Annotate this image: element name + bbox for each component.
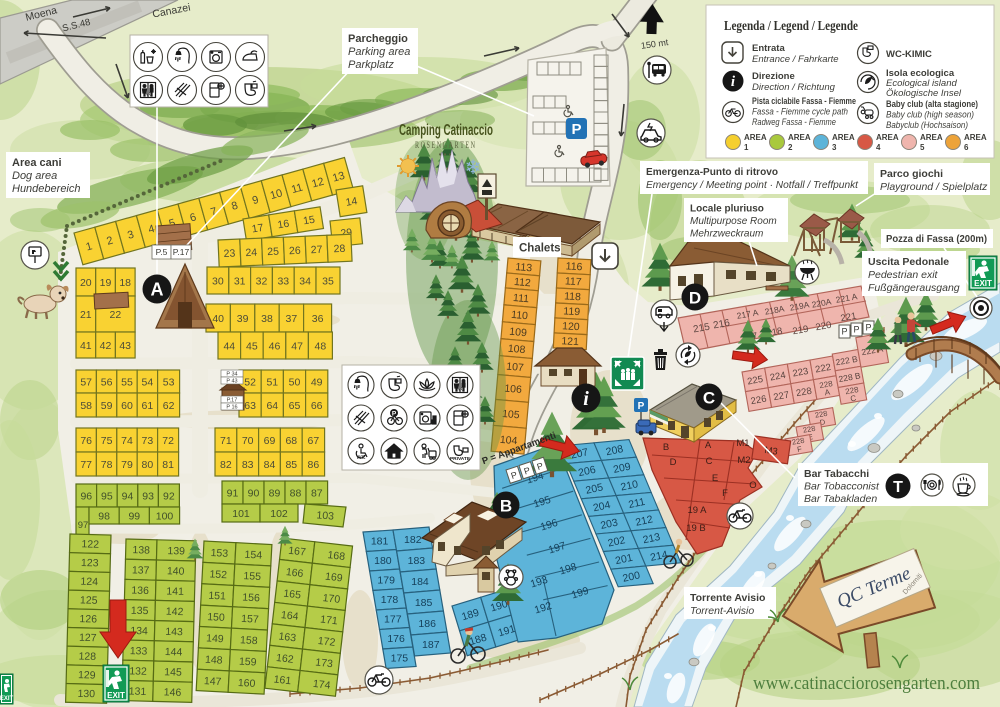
svg-text:Entrance / Fahrkarte: Entrance / Fahrkarte: [752, 54, 839, 65]
svg-text:113: 113: [515, 261, 533, 274]
svg-text:99: 99: [128, 510, 140, 522]
svg-text:101: 101: [232, 508, 250, 520]
svg-text:39: 39: [237, 313, 249, 325]
svg-text:19 B: 19 B: [686, 523, 706, 534]
svg-text:EXIT: EXIT: [974, 279, 992, 288]
svg-text:R O S E N G A R T E N: R O S E N G A R T E N: [415, 140, 475, 150]
svg-text:49: 49: [311, 376, 323, 388]
svg-text:48: 48: [315, 340, 327, 352]
svg-text:135: 135: [131, 605, 149, 617]
svg-text:23: 23: [223, 248, 235, 261]
svg-text:44: 44: [223, 340, 235, 352]
svg-text:164: 164: [280, 609, 299, 623]
svg-text:Pedestrian exit: Pedestrian exit: [868, 269, 939, 281]
svg-text:EXIT: EXIT: [107, 691, 125, 700]
svg-text:F: F: [722, 488, 728, 499]
svg-text:176: 176: [387, 633, 405, 645]
svg-text:B: B: [500, 497, 512, 516]
svg-text:154: 154: [244, 549, 262, 562]
svg-text:1: 1: [744, 143, 749, 152]
svg-text:43: 43: [119, 340, 131, 352]
svg-text:P 43: P 43: [226, 379, 237, 385]
svg-text:Area cani: Area cani: [12, 157, 62, 169]
svg-text:71: 71: [220, 435, 232, 447]
svg-text:P.5: P.5: [156, 247, 168, 257]
svg-text:18: 18: [119, 277, 131, 289]
svg-text:T: T: [893, 479, 903, 496]
svg-text:90: 90: [248, 487, 260, 499]
svg-text:21: 21: [80, 309, 92, 321]
svg-text:5: 5: [920, 143, 925, 152]
svg-text:26: 26: [289, 245, 301, 258]
svg-text:Fassa - Fiemme cycle path: Fassa - Fiemme cycle path: [752, 107, 848, 118]
svg-text:27: 27: [311, 244, 323, 257]
svg-text:163: 163: [278, 630, 297, 644]
svg-text:2: 2: [788, 143, 793, 152]
svg-text:Pista ciclabile Fassa - Fiemme: Pista ciclabile Fassa - Fiemme: [752, 96, 856, 107]
svg-text:Dog area: Dog area: [12, 170, 57, 182]
svg-text:16: 16: [277, 218, 291, 232]
svg-text:161: 161: [273, 673, 292, 687]
svg-text:36: 36: [312, 313, 324, 325]
svg-text:94: 94: [122, 490, 134, 502]
svg-text:131: 131: [129, 686, 147, 698]
svg-text:Torrente Avisio: Torrente Avisio: [690, 592, 765, 604]
svg-text:152: 152: [209, 568, 227, 581]
svg-text:81: 81: [162, 459, 174, 471]
svg-text:102: 102: [270, 508, 288, 520]
svg-text:Parco giochi: Parco giochi: [880, 168, 943, 180]
svg-text:P 34: P 34: [226, 372, 237, 378]
svg-text:Direzione: Direzione: [752, 71, 795, 82]
svg-text:97: 97: [78, 520, 89, 531]
svg-text:50: 50: [289, 376, 301, 388]
svg-text:E: E: [712, 473, 718, 484]
svg-text:169: 169: [324, 571, 343, 585]
svg-text:A: A: [705, 440, 712, 451]
svg-text:67: 67: [308, 435, 320, 447]
svg-text:173: 173: [315, 656, 334, 670]
svg-text:WC-KIMIC: WC-KIMIC: [886, 49, 932, 60]
svg-text:O: O: [749, 480, 756, 491]
svg-text:41: 41: [80, 340, 92, 352]
svg-text:33: 33: [277, 275, 289, 287]
svg-text:22: 22: [110, 309, 122, 321]
svg-text:116: 116: [565, 260, 583, 273]
svg-text:96: 96: [80, 490, 92, 502]
svg-text:Playground / Spielplatz: Playground / Spielplatz: [880, 181, 988, 193]
svg-text:Hundebereich: Hundebereich: [12, 183, 81, 195]
svg-text:Locale pluriuso: Locale pluriuso: [690, 204, 764, 215]
svg-text:Baby club (high season): Baby club (high season): [886, 110, 974, 121]
svg-text:117: 117: [565, 275, 583, 288]
svg-text:171: 171: [320, 613, 339, 627]
svg-text:82: 82: [220, 459, 232, 471]
svg-text:64: 64: [266, 400, 278, 412]
svg-text:51: 51: [266, 376, 278, 388]
svg-text:Radweg Fassa - Fiemme: Radweg Fassa - Fiemme: [752, 117, 836, 128]
svg-text:P: P: [853, 325, 859, 335]
svg-text:72: 72: [162, 435, 174, 447]
svg-text:65: 65: [289, 400, 301, 412]
svg-text:149: 149: [206, 632, 224, 645]
svg-text:156: 156: [242, 591, 260, 604]
svg-text:93: 93: [142, 490, 154, 502]
svg-text:143: 143: [165, 626, 183, 638]
svg-text:118: 118: [564, 290, 582, 303]
svg-text:129: 129: [78, 669, 96, 681]
svg-text:69: 69: [264, 435, 276, 447]
svg-text:WC: WC: [143, 92, 152, 98]
svg-text:128: 128: [78, 650, 96, 662]
svg-text:Uscita Pedonale: Uscita Pedonale: [868, 256, 949, 268]
svg-text:85: 85: [285, 459, 297, 471]
svg-text:Bar Tabacchi: Bar Tabacchi: [804, 468, 869, 480]
svg-text:58: 58: [80, 400, 92, 412]
svg-text:147: 147: [204, 675, 222, 688]
svg-text:89: 89: [269, 487, 281, 499]
svg-text:144: 144: [165, 646, 183, 658]
svg-text:76: 76: [80, 435, 92, 447]
svg-text:Fußgängerausgang: Fußgängerausgang: [868, 282, 960, 294]
svg-text:Emergency / Meeting point · No: Emergency / Meeting point · Notfall / Tr…: [646, 179, 859, 191]
svg-text:60: 60: [121, 400, 133, 412]
svg-text:Direction / Richtung: Direction / Richtung: [752, 82, 836, 93]
svg-text:Bar Tabakladen: Bar Tabakladen: [804, 493, 877, 505]
svg-text:166: 166: [285, 566, 304, 580]
svg-text:4: 4: [876, 143, 881, 152]
svg-text:178: 178: [381, 594, 399, 606]
svg-text:137: 137: [132, 564, 150, 576]
svg-text:56: 56: [101, 376, 113, 388]
svg-text:A: A: [151, 280, 164, 300]
svg-text:75: 75: [101, 435, 113, 447]
svg-text:P: P: [865, 323, 871, 333]
svg-text:54: 54: [142, 376, 154, 388]
svg-text:61: 61: [142, 400, 154, 412]
svg-text:63: 63: [244, 400, 256, 412]
svg-text:42: 42: [100, 340, 112, 352]
svg-text:83: 83: [242, 459, 254, 471]
svg-text:159: 159: [239, 656, 257, 669]
svg-text:37: 37: [286, 313, 298, 325]
svg-text:19: 19: [100, 277, 112, 289]
svg-text:142: 142: [166, 606, 184, 618]
svg-text:Ökologische Insel: Ökologische Insel: [886, 88, 962, 99]
svg-text:Parkplatz: Parkplatz: [348, 59, 394, 71]
svg-text:28: 28: [333, 243, 345, 256]
svg-text:15: 15: [302, 214, 316, 228]
svg-text:145: 145: [164, 666, 182, 678]
svg-text:P: P: [638, 401, 645, 412]
svg-text:181: 181: [371, 536, 389, 548]
svg-text:www.catinacciorosengarten.com: www.catinacciorosengarten.com: [753, 673, 980, 694]
svg-text:30: 30: [212, 275, 224, 287]
svg-text:D: D: [689, 289, 701, 308]
svg-text:C: C: [706, 456, 713, 467]
svg-text:80: 80: [142, 459, 154, 471]
svg-text:Entrata: Entrata: [752, 43, 785, 54]
svg-text:151: 151: [208, 590, 226, 603]
svg-text:P 16: P 16: [226, 405, 237, 411]
svg-text:Pozza di Fassa (200m): Pozza di Fassa (200m): [886, 233, 987, 245]
svg-text:PRIVATE: PRIVATE: [450, 456, 471, 462]
svg-text:M2: M2: [737, 455, 750, 466]
svg-text:AREA: AREA: [832, 133, 855, 142]
svg-text:87: 87: [311, 487, 323, 499]
svg-text:Babyclub (Hochsaison): Babyclub (Hochsaison): [886, 120, 968, 131]
svg-text:Parking area: Parking area: [348, 46, 410, 58]
svg-text:103: 103: [316, 509, 334, 522]
svg-text:146: 146: [164, 686, 182, 698]
svg-text:125: 125: [80, 594, 98, 606]
svg-text:14: 14: [345, 195, 359, 209]
svg-text:106: 106: [504, 383, 523, 396]
svg-text:136: 136: [131, 585, 149, 597]
svg-text:132: 132: [129, 665, 147, 677]
svg-text:179: 179: [377, 575, 395, 587]
svg-text:19 A: 19 A: [687, 505, 707, 516]
svg-text:180: 180: [374, 555, 392, 567]
svg-text:34: 34: [299, 275, 311, 287]
svg-text:153: 153: [210, 547, 228, 560]
svg-text:184: 184: [411, 576, 429, 588]
svg-text:108: 108: [507, 343, 526, 356]
svg-text:70: 70: [242, 435, 254, 447]
svg-text:84: 84: [264, 459, 276, 471]
svg-text:124: 124: [80, 576, 98, 588]
svg-text:160: 160: [238, 677, 256, 690]
svg-text:157: 157: [241, 613, 259, 626]
svg-text:78: 78: [101, 459, 113, 471]
svg-text:162: 162: [275, 652, 294, 666]
svg-text:D: D: [670, 457, 677, 468]
svg-text:119: 119: [563, 305, 581, 318]
svg-text:92: 92: [163, 490, 175, 502]
svg-text:150: 150: [207, 611, 225, 624]
svg-text:EXIT: EXIT: [0, 696, 13, 702]
svg-text:46: 46: [269, 340, 281, 352]
svg-text:55: 55: [121, 376, 133, 388]
svg-text:107: 107: [506, 361, 525, 374]
svg-text:Camping Catinaccio: Camping Catinaccio: [399, 122, 493, 139]
svg-text:130: 130: [77, 688, 95, 700]
svg-text:57: 57: [80, 376, 92, 388]
svg-text:M1: M1: [736, 438, 749, 449]
svg-text:AREA: AREA: [788, 133, 811, 142]
svg-text:38: 38: [261, 313, 273, 325]
svg-text:186: 186: [418, 618, 436, 630]
svg-text:98: 98: [98, 510, 110, 522]
svg-text:167: 167: [288, 545, 307, 559]
svg-text:140: 140: [167, 565, 185, 577]
svg-text:158: 158: [240, 634, 258, 647]
svg-text:Chalets: Chalets: [519, 243, 561, 255]
svg-text:138: 138: [132, 544, 150, 556]
svg-text:P: P: [392, 411, 397, 418]
svg-text:187: 187: [422, 639, 440, 651]
svg-text:73: 73: [142, 435, 154, 447]
svg-text:25: 25: [267, 246, 279, 259]
svg-text:133: 133: [130, 645, 148, 657]
svg-text:32: 32: [256, 275, 268, 287]
svg-text:86: 86: [308, 459, 320, 471]
svg-text:100: 100: [156, 510, 174, 522]
svg-text:110: 110: [511, 309, 529, 322]
svg-text:168: 168: [327, 549, 346, 563]
svg-text:P: P: [841, 327, 847, 337]
svg-text:68: 68: [285, 435, 297, 447]
svg-text:31: 31: [234, 275, 246, 287]
svg-text:52: 52: [244, 376, 256, 388]
svg-text:17: 17: [251, 222, 265, 236]
svg-text:182: 182: [404, 534, 422, 546]
svg-text:121: 121: [561, 335, 579, 348]
svg-text:127: 127: [79, 632, 97, 644]
svg-text:AREA: AREA: [964, 133, 987, 142]
svg-text:112: 112: [514, 276, 532, 289]
svg-text:77: 77: [80, 459, 92, 471]
svg-text:Parcheggio: Parcheggio: [348, 33, 408, 45]
svg-text:53: 53: [163, 376, 175, 388]
svg-text:165: 165: [283, 588, 302, 602]
svg-text:177: 177: [384, 614, 402, 626]
svg-text:95: 95: [101, 490, 113, 502]
svg-text:185: 185: [415, 597, 433, 609]
svg-text:170: 170: [322, 592, 341, 606]
svg-text:Baby club (alta stagione): Baby club (alta stagione): [886, 99, 978, 110]
svg-text:20: 20: [80, 277, 92, 289]
svg-text:120: 120: [562, 320, 580, 333]
svg-text:AREA: AREA: [744, 133, 767, 142]
svg-text:88: 88: [290, 487, 302, 499]
svg-text:AREA: AREA: [876, 133, 899, 142]
svg-text:45: 45: [246, 340, 258, 352]
svg-text:174: 174: [312, 678, 331, 692]
svg-text:6: 6: [964, 143, 969, 152]
svg-text:WC: WC: [356, 455, 365, 461]
svg-text:111: 111: [513, 292, 530, 305]
svg-text:Mehrzweckraum: Mehrzweckraum: [690, 229, 763, 240]
svg-text:74: 74: [121, 435, 133, 447]
svg-text:91: 91: [227, 487, 239, 499]
svg-text:122: 122: [81, 538, 99, 550]
svg-text:109: 109: [509, 326, 528, 339]
svg-text:139: 139: [167, 545, 185, 557]
svg-text:• • •: • • •: [439, 150, 452, 159]
svg-text:B: B: [663, 442, 669, 453]
svg-text:P: P: [571, 121, 581, 138]
svg-text:172: 172: [317, 635, 336, 649]
svg-text:183: 183: [408, 555, 426, 567]
svg-text:i: i: [583, 388, 589, 410]
svg-text:Torrent-Avisio: Torrent-Avisio: [690, 605, 754, 617]
svg-text:126: 126: [79, 613, 97, 625]
svg-text:Bar Tobacconist: Bar Tobacconist: [804, 480, 880, 492]
svg-text:P.17: P.17: [173, 247, 190, 257]
svg-text:155: 155: [243, 570, 261, 583]
svg-text:Emergenza-Punto di ritrovo: Emergenza-Punto di ritrovo: [646, 166, 778, 178]
svg-text:M3: M3: [764, 445, 779, 458]
svg-text:40: 40: [212, 313, 224, 325]
svg-text:62: 62: [163, 400, 175, 412]
svg-text:Legenda / Legend / Legende: Legenda / Legend / Legende: [724, 19, 858, 34]
svg-text:35: 35: [322, 275, 334, 287]
svg-text:24: 24: [245, 247, 257, 260]
svg-text:175: 175: [391, 653, 409, 665]
svg-text:Multipurpose Room: Multipurpose Room: [690, 216, 777, 227]
svg-text:47: 47: [291, 340, 303, 352]
svg-text:59: 59: [101, 400, 113, 412]
svg-text:3: 3: [832, 143, 837, 152]
svg-text:C: C: [703, 389, 715, 408]
svg-text:WC: WC: [455, 387, 464, 393]
svg-text:141: 141: [166, 585, 184, 597]
svg-text:148: 148: [205, 654, 223, 667]
svg-text:AREA: AREA: [920, 133, 943, 142]
svg-text:66: 66: [311, 400, 323, 412]
svg-text:P.17: P.17: [227, 398, 238, 404]
svg-text:79: 79: [121, 459, 133, 471]
svg-text:123: 123: [81, 557, 99, 569]
